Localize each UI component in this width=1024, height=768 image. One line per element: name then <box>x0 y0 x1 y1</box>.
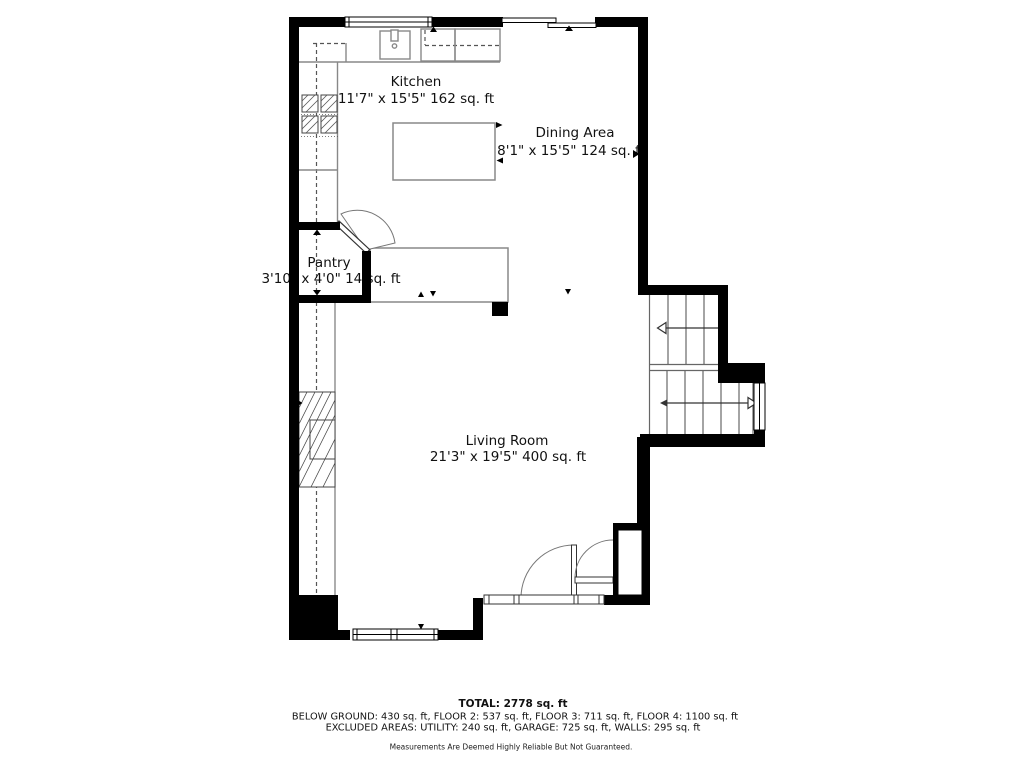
disclaimer-label: Measurements Are Deemed Highly Reliable … <box>390 743 633 752</box>
entry-door-icon <box>575 540 613 583</box>
total-area-label: TOTAL: 2778 sq. ft <box>459 698 568 710</box>
bar-post <box>492 302 508 316</box>
floor-areas-label: BELOW GROUND: 430 sq. ft, FLOOR 2: 537 s… <box>292 712 738 723</box>
sliding-door-icon <box>502 18 596 28</box>
pantry-name-label: Pantry <box>307 255 350 271</box>
dashed-cabinet-lines <box>313 30 499 595</box>
marker-up-icon <box>313 230 321 236</box>
stair-window-icon <box>754 383 765 430</box>
floor-plan-drawing: 8'1" x 15'5" 124 sq. ft 3'10" x 4'0" 14 … <box>0 0 1024 768</box>
marker-down-icon <box>565 289 571 295</box>
sink-icon <box>380 30 410 59</box>
dining-dims-label: 8'1" x 15'5" 124 sq. ft <box>497 143 645 159</box>
patio-door-left-icon <box>521 545 577 598</box>
dimension-markers <box>292 26 640 630</box>
kitchen-name-label: Kitchen <box>391 74 442 90</box>
living-dims-label: 21'3" x 19'5" 400 sq. ft <box>430 449 586 465</box>
patio-threshold-icon <box>484 595 604 604</box>
stairs-down-arrow <box>660 398 757 409</box>
floor-plan-page: 8'1" x 15'5" 124 sq. ft 3'10" x 4'0" 14 … <box>0 0 1024 768</box>
marker-right-icon <box>496 122 503 128</box>
pantry-door-icon <box>336 210 395 253</box>
area-summary: TOTAL: 2778 sq. ft BELOW GROUND: 430 sq.… <box>292 698 738 752</box>
kitchen-window-icon <box>345 17 432 27</box>
stairs-up-arrow <box>658 323 719 334</box>
fireplace-icon <box>299 392 335 487</box>
stove-icon <box>301 95 338 137</box>
kitchen-island <box>393 123 495 180</box>
excluded-areas-label: EXCLUDED AREAS: UTILITY: 240 sq. ft, GAR… <box>326 723 701 734</box>
dining-name-label: Dining Area <box>536 125 615 141</box>
pantry-dims-label: 3'10" x 4'0" 14 sq. ft <box>261 271 400 287</box>
marker-down-icon <box>313 290 321 296</box>
living-window-icon <box>353 629 438 640</box>
kitchen-dims-label: 11'7" x 15'5" 162 sq. ft <box>338 91 494 107</box>
entry-panel-icon <box>618 530 642 595</box>
living-name-label: Living Room <box>466 433 549 449</box>
kitchen-fixtures <box>299 29 500 595</box>
